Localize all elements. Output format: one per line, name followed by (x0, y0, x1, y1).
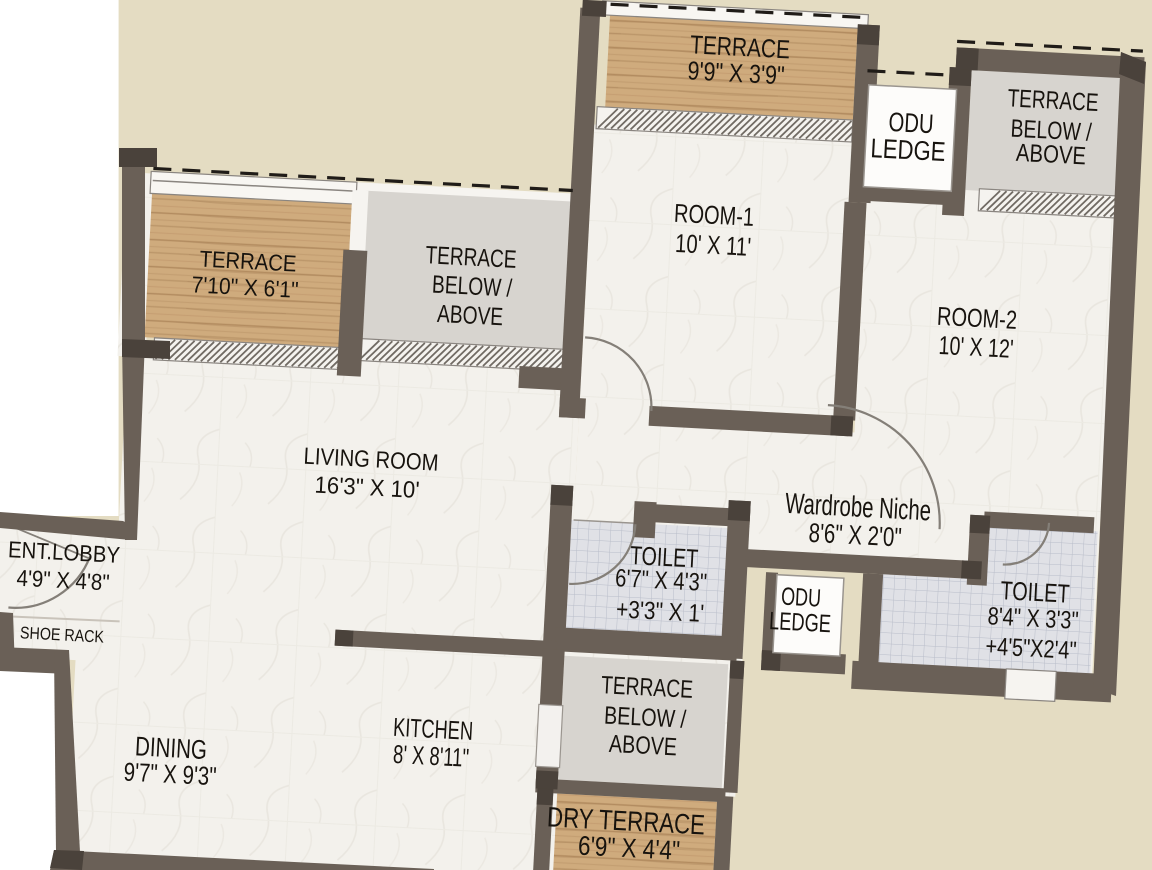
svg-text:8'4" X 3'3": 8'4" X 3'3" (987, 602, 1079, 635)
svg-text:4'9" X 4'8": 4'9" X 4'8" (16, 565, 110, 596)
svg-text:8'6" X 2'0": 8'6" X 2'0" (808, 518, 902, 553)
svg-text:10' X 12': 10' X 12' (938, 330, 1014, 364)
svg-text:8' X 8'11": 8' X 8'11" (392, 739, 469, 773)
svg-text:BELOW /: BELOW / (603, 701, 686, 733)
svg-text:LEDGE: LEDGE (768, 607, 831, 638)
svg-text:9'9" X 3'9": 9'9" X 3'9" (687, 55, 785, 90)
svg-text:6'9" X 4'4": 6'9" X 4'4" (577, 831, 680, 866)
svg-text:6'7" X 4'3": 6'7" X 4'3" (614, 564, 707, 597)
svg-text:+3'3" X 1': +3'3" X 1' (615, 595, 704, 628)
svg-text:ABOVE: ABOVE (608, 730, 677, 762)
svg-text:ABOVE: ABOVE (1015, 139, 1086, 171)
svg-text:ROOM-1: ROOM-1 (673, 198, 754, 232)
svg-text:16'3" X 10': 16'3" X 10' (314, 472, 420, 503)
svg-text:TERRACE: TERRACE (425, 241, 517, 274)
svg-text:9'7" X 9'3": 9'7" X 9'3" (123, 756, 217, 791)
svg-text:10' X 11': 10' X 11' (674, 228, 751, 262)
svg-text:+4'5"X2'4": +4'5"X2'4" (985, 632, 1077, 665)
svg-text:BELOW /: BELOW / (431, 270, 512, 302)
svg-text:TERRACE: TERRACE (1007, 84, 1099, 117)
svg-text:LEDGE: LEDGE (870, 133, 946, 167)
svg-text:ABOVE: ABOVE (436, 300, 503, 331)
svg-text:TERRACE: TERRACE (600, 671, 693, 704)
